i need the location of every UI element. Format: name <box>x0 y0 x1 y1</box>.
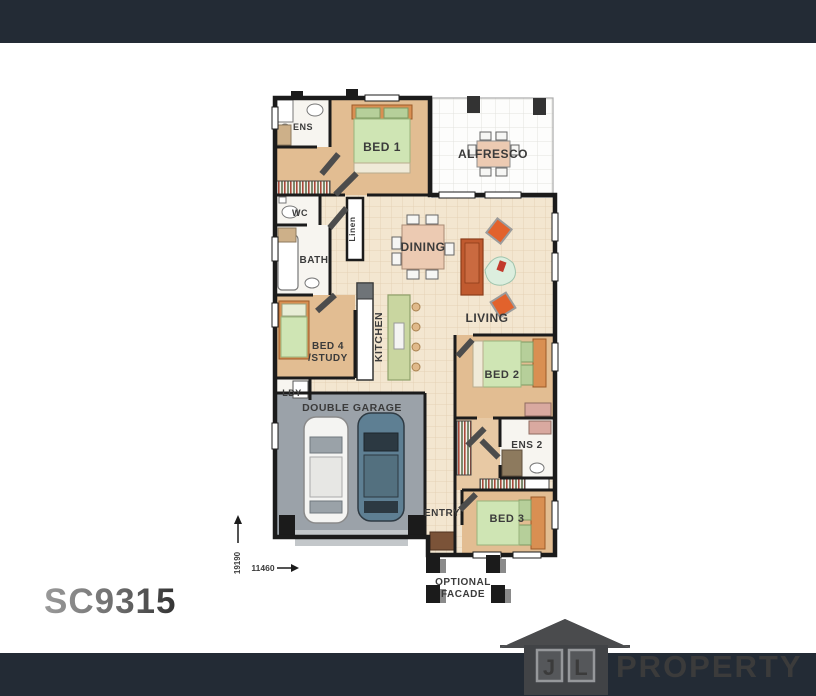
wc-label: WC <box>292 208 308 218</box>
wir-robe-icon <box>275 181 330 194</box>
plan-code: SC9315 <box>44 582 176 622</box>
ldy-label: LDY <box>282 388 302 398</box>
floor-plan: ALFRESCO <box>215 85 575 610</box>
logo: J L PROPERTY <box>500 615 816 696</box>
logo-letter-j: J <box>543 655 555 680</box>
facade-label-line1: OPTIONAL <box>435 577 491 588</box>
bed2-label: BED 2 <box>485 369 520 381</box>
alfresco-post-icon <box>533 98 546 115</box>
bed1-label: BED 1 <box>363 140 401 154</box>
optional-facade: OPTIONAL FACADE <box>426 555 511 603</box>
bed4-bed-icon <box>279 301 309 359</box>
bed3-label: BED 3 <box>490 513 525 525</box>
alfresco-label: ALFRESCO <box>458 147 528 161</box>
bed4-label-line1: BED 4 <box>312 341 344 352</box>
kitchen-label: KITCHEN <box>373 312 385 362</box>
bed3-wir-icon <box>480 479 525 490</box>
entry-mat-icon <box>430 532 454 550</box>
wall-pier-icon <box>346 89 358 98</box>
logo-word: PROPERTY <box>616 649 803 684</box>
bed3-shelf-icon <box>525 479 549 490</box>
wall-pier-icon <box>291 91 303 100</box>
ens-label: ENS <box>293 122 313 132</box>
logo-letter-l: L <box>574 655 587 680</box>
facade-label-line2: FACADE <box>441 589 485 600</box>
dimension-width: 11460 <box>251 563 274 573</box>
car-white-icon <box>304 417 348 523</box>
dining-label: DINING <box>401 240 446 254</box>
hall-robe-icon <box>457 421 471 475</box>
linen-cabinet: Linen <box>347 198 363 260</box>
room-alfresco: ALFRESCO <box>432 96 553 198</box>
bed4-label-line2: /STUDY <box>308 353 348 364</box>
ens2-label: ENS 2 <box>511 440 542 451</box>
garage-label: DOUBLE GARAGE <box>302 402 402 414</box>
kitchen-icon <box>357 283 420 380</box>
car-blue-icon <box>358 413 404 521</box>
header-bar <box>0 0 816 43</box>
page: ALFRESCO <box>0 0 816 696</box>
entry-label: ENTRY <box>424 508 460 519</box>
linen-label: Linen <box>347 216 357 241</box>
dimension-depth: 19190 <box>233 551 242 574</box>
alfresco-post-icon <box>467 96 480 113</box>
bed1-bed-icon <box>352 105 412 173</box>
bath-label: BATH <box>299 255 328 266</box>
logo-house-icon: J L <box>500 619 630 695</box>
living-label: LIVING <box>465 311 508 325</box>
